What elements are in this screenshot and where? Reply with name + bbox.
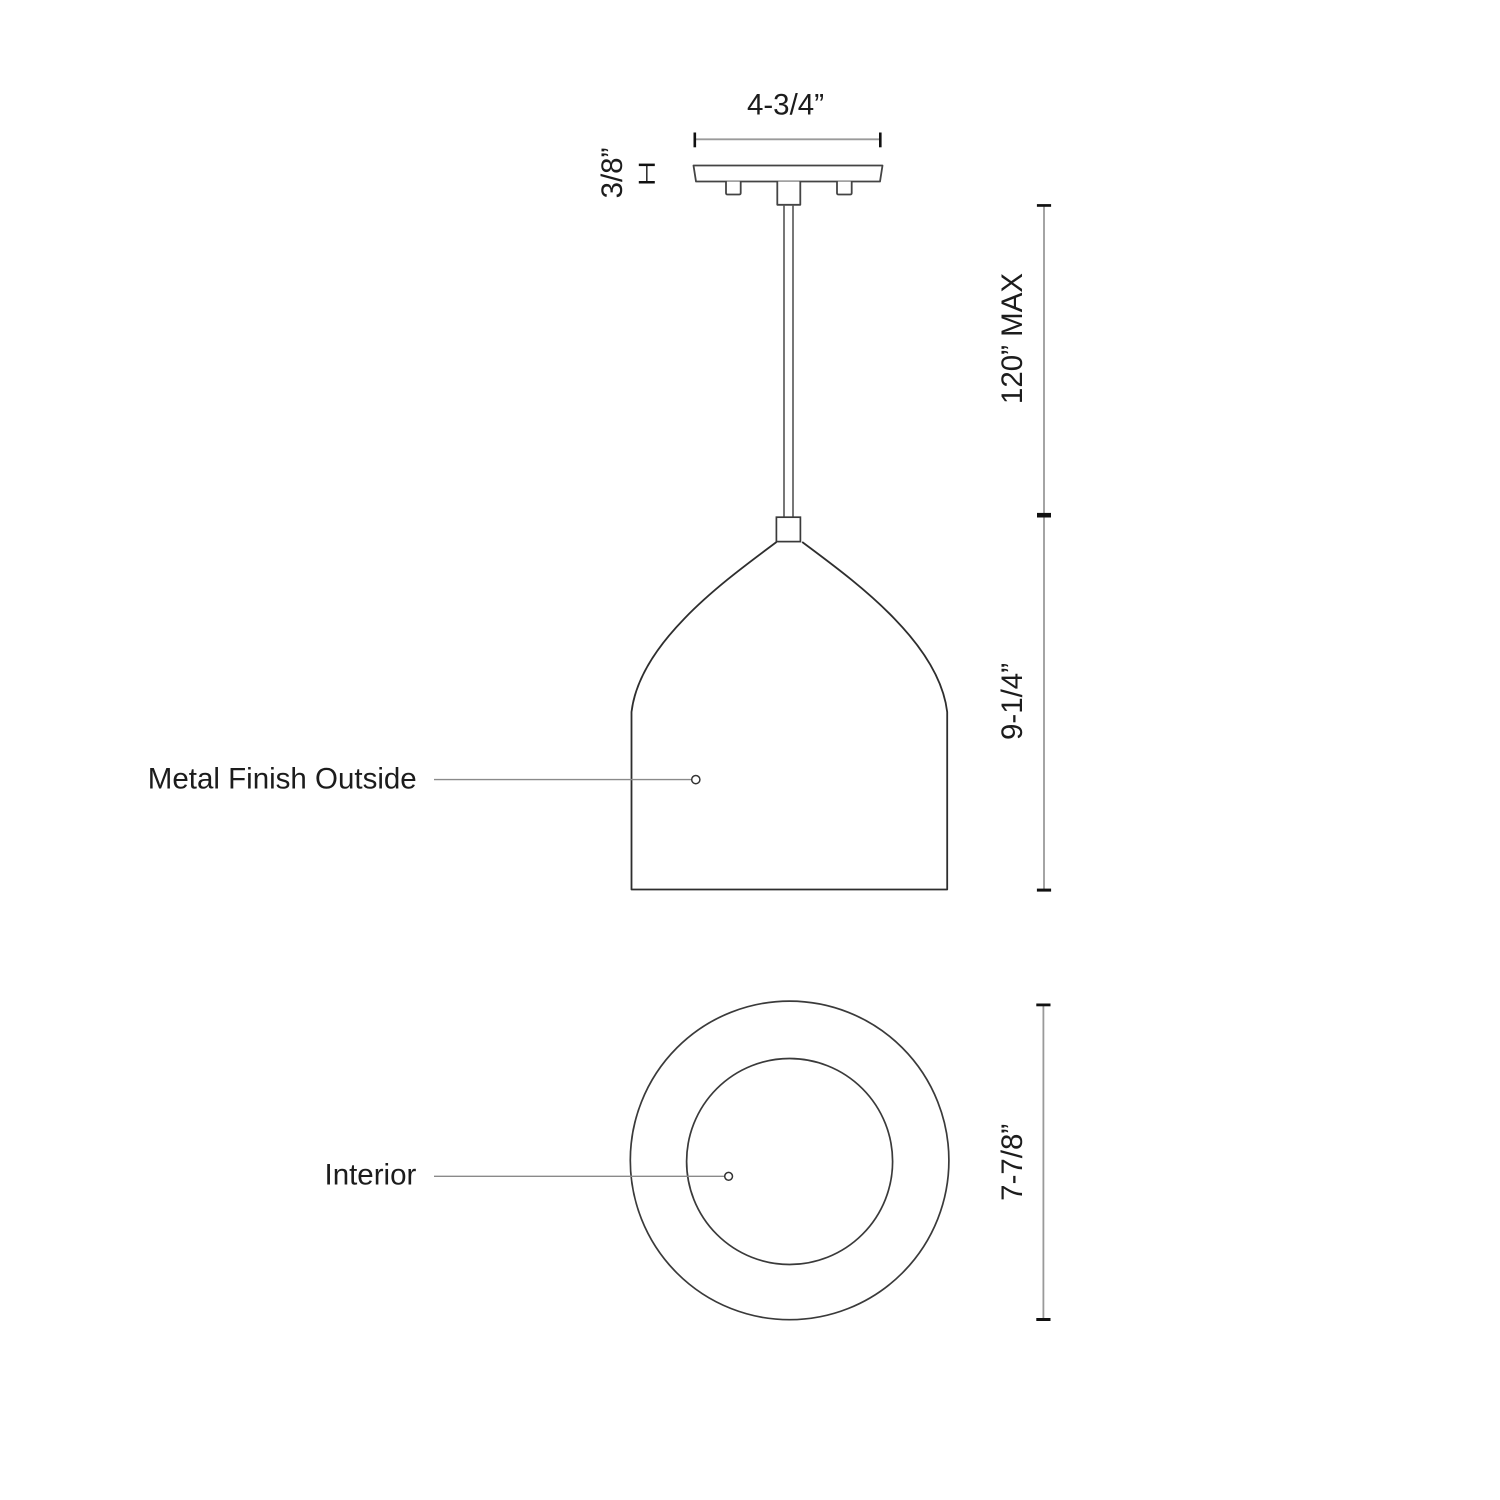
svg-text:4-3/4”: 4-3/4” — [747, 89, 824, 122]
svg-text:120” MAX: 120” MAX — [996, 273, 1029, 404]
svg-text:Metal Finish Outside: Metal Finish Outside — [148, 763, 417, 796]
svg-text:3/8”: 3/8” — [596, 148, 629, 199]
svg-text:7-7/8”: 7-7/8” — [996, 1124, 1029, 1201]
svg-text:9-1/4”: 9-1/4” — [996, 663, 1029, 740]
svg-text:Interior: Interior — [325, 1159, 417, 1192]
